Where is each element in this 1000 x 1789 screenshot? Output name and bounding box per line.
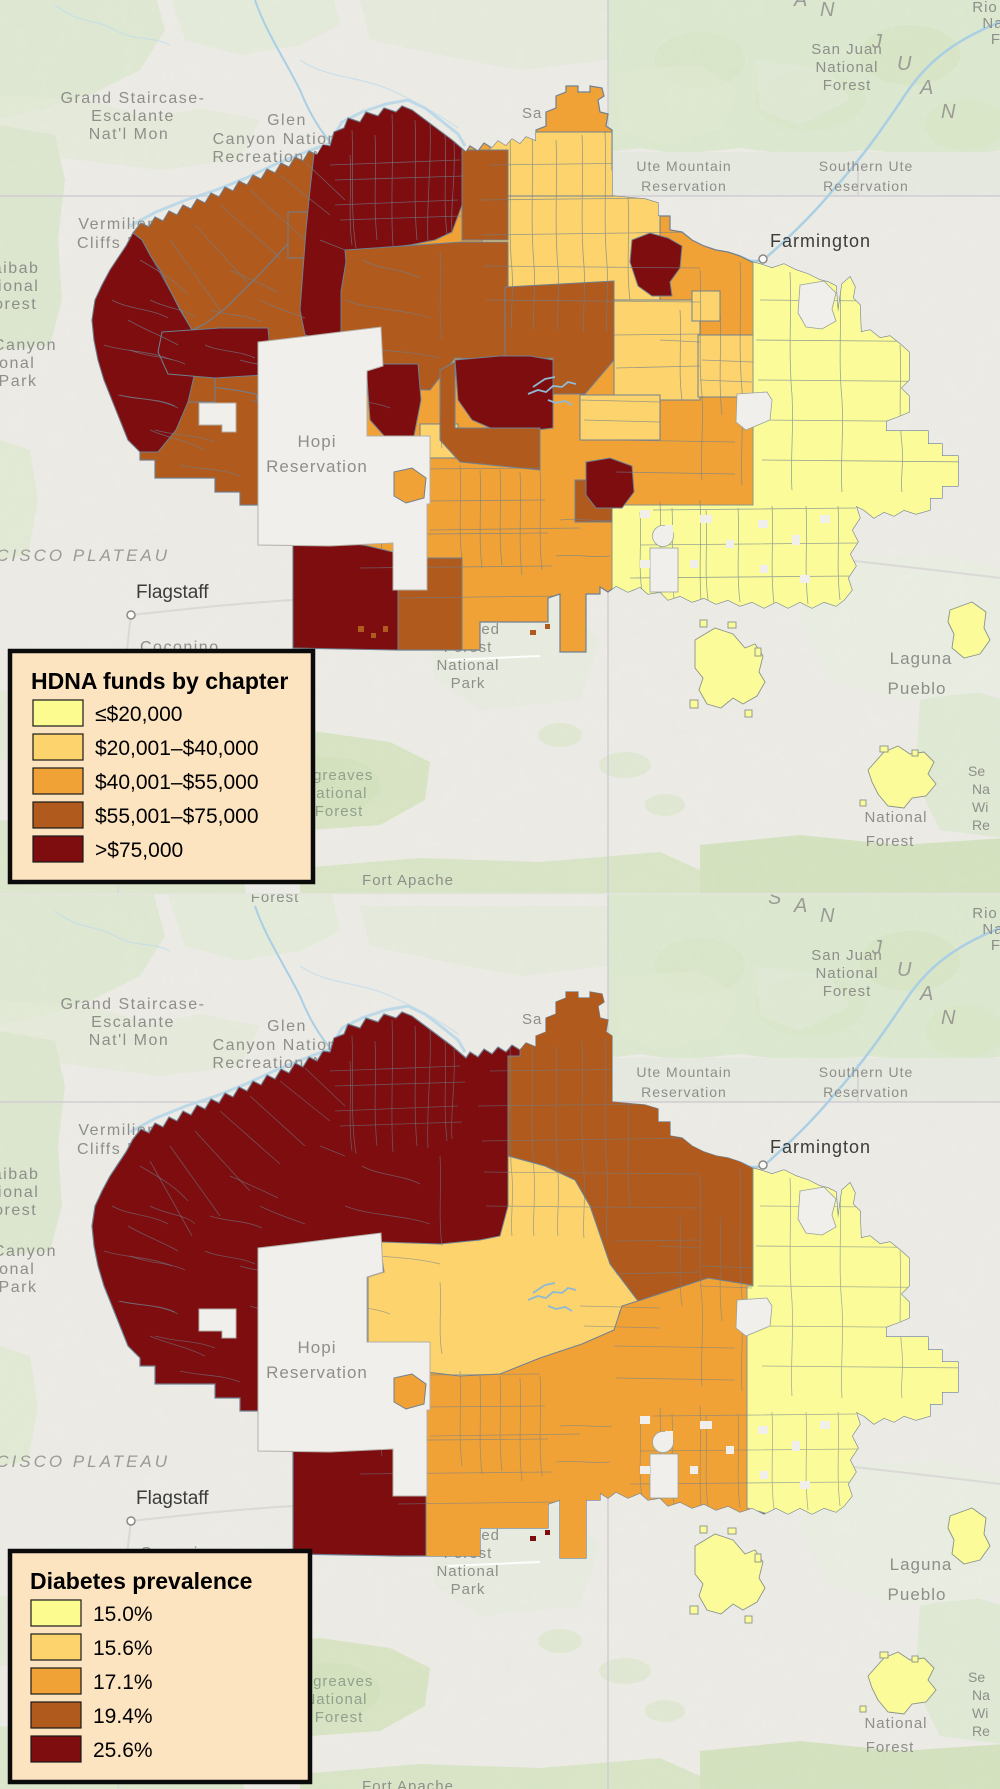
- svg-text:Diabetes prevalence: Diabetes prevalence: [30, 1568, 252, 1594]
- svg-text:17.1%: 17.1%: [93, 1671, 153, 1694]
- svg-text:≤$20,000: ≤$20,000: [95, 703, 182, 726]
- svg-text:>$75,000: >$75,000: [95, 839, 183, 862]
- svg-text:15.6%: 15.6%: [93, 1637, 153, 1660]
- svg-text:$40,001–$55,000: $40,001–$55,000: [95, 771, 259, 794]
- svg-text:$55,001–$75,000: $55,001–$75,000: [95, 805, 259, 828]
- svg-text:25.6%: 25.6%: [93, 1739, 153, 1762]
- svg-text:19.4%: 19.4%: [93, 1705, 153, 1728]
- svg-text:HDNA funds by chapter: HDNA funds by chapter: [31, 668, 288, 694]
- svg-text:15.0%: 15.0%: [93, 1603, 153, 1626]
- svg-text:$20,001–$40,000: $20,001–$40,000: [95, 737, 259, 760]
